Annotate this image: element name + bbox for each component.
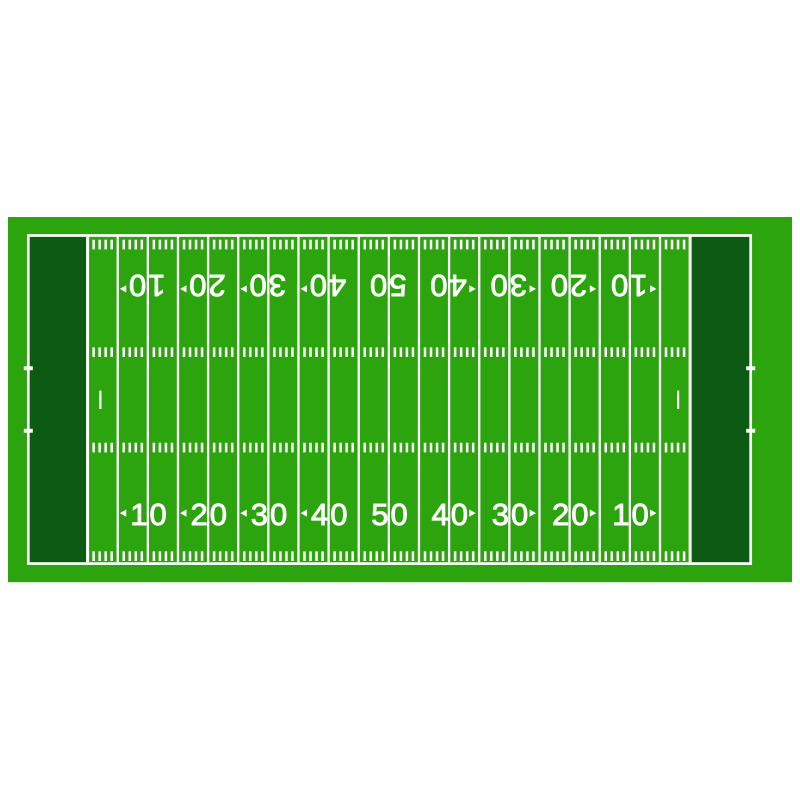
svg-text:20: 20 xyxy=(190,497,228,532)
svg-text:30: 30 xyxy=(489,268,527,303)
svg-text:50: 50 xyxy=(371,497,409,532)
svg-text:10: 10 xyxy=(612,497,650,532)
svg-text:10: 10 xyxy=(127,268,165,303)
svg-text:20: 20 xyxy=(549,268,587,303)
svg-text:50: 50 xyxy=(368,268,406,303)
svg-text:20: 20 xyxy=(187,268,225,303)
svg-text:20: 20 xyxy=(552,497,590,532)
svg-text:30: 30 xyxy=(492,497,530,532)
svg-text:30: 30 xyxy=(251,497,289,532)
svg-text:10: 10 xyxy=(130,497,168,532)
svg-text:30: 30 xyxy=(248,268,286,303)
svg-text:40: 40 xyxy=(308,268,346,303)
svg-text:40: 40 xyxy=(428,268,466,303)
svg-text:40: 40 xyxy=(431,497,469,532)
svg-text:40: 40 xyxy=(311,497,349,532)
svg-text:10: 10 xyxy=(609,268,647,303)
